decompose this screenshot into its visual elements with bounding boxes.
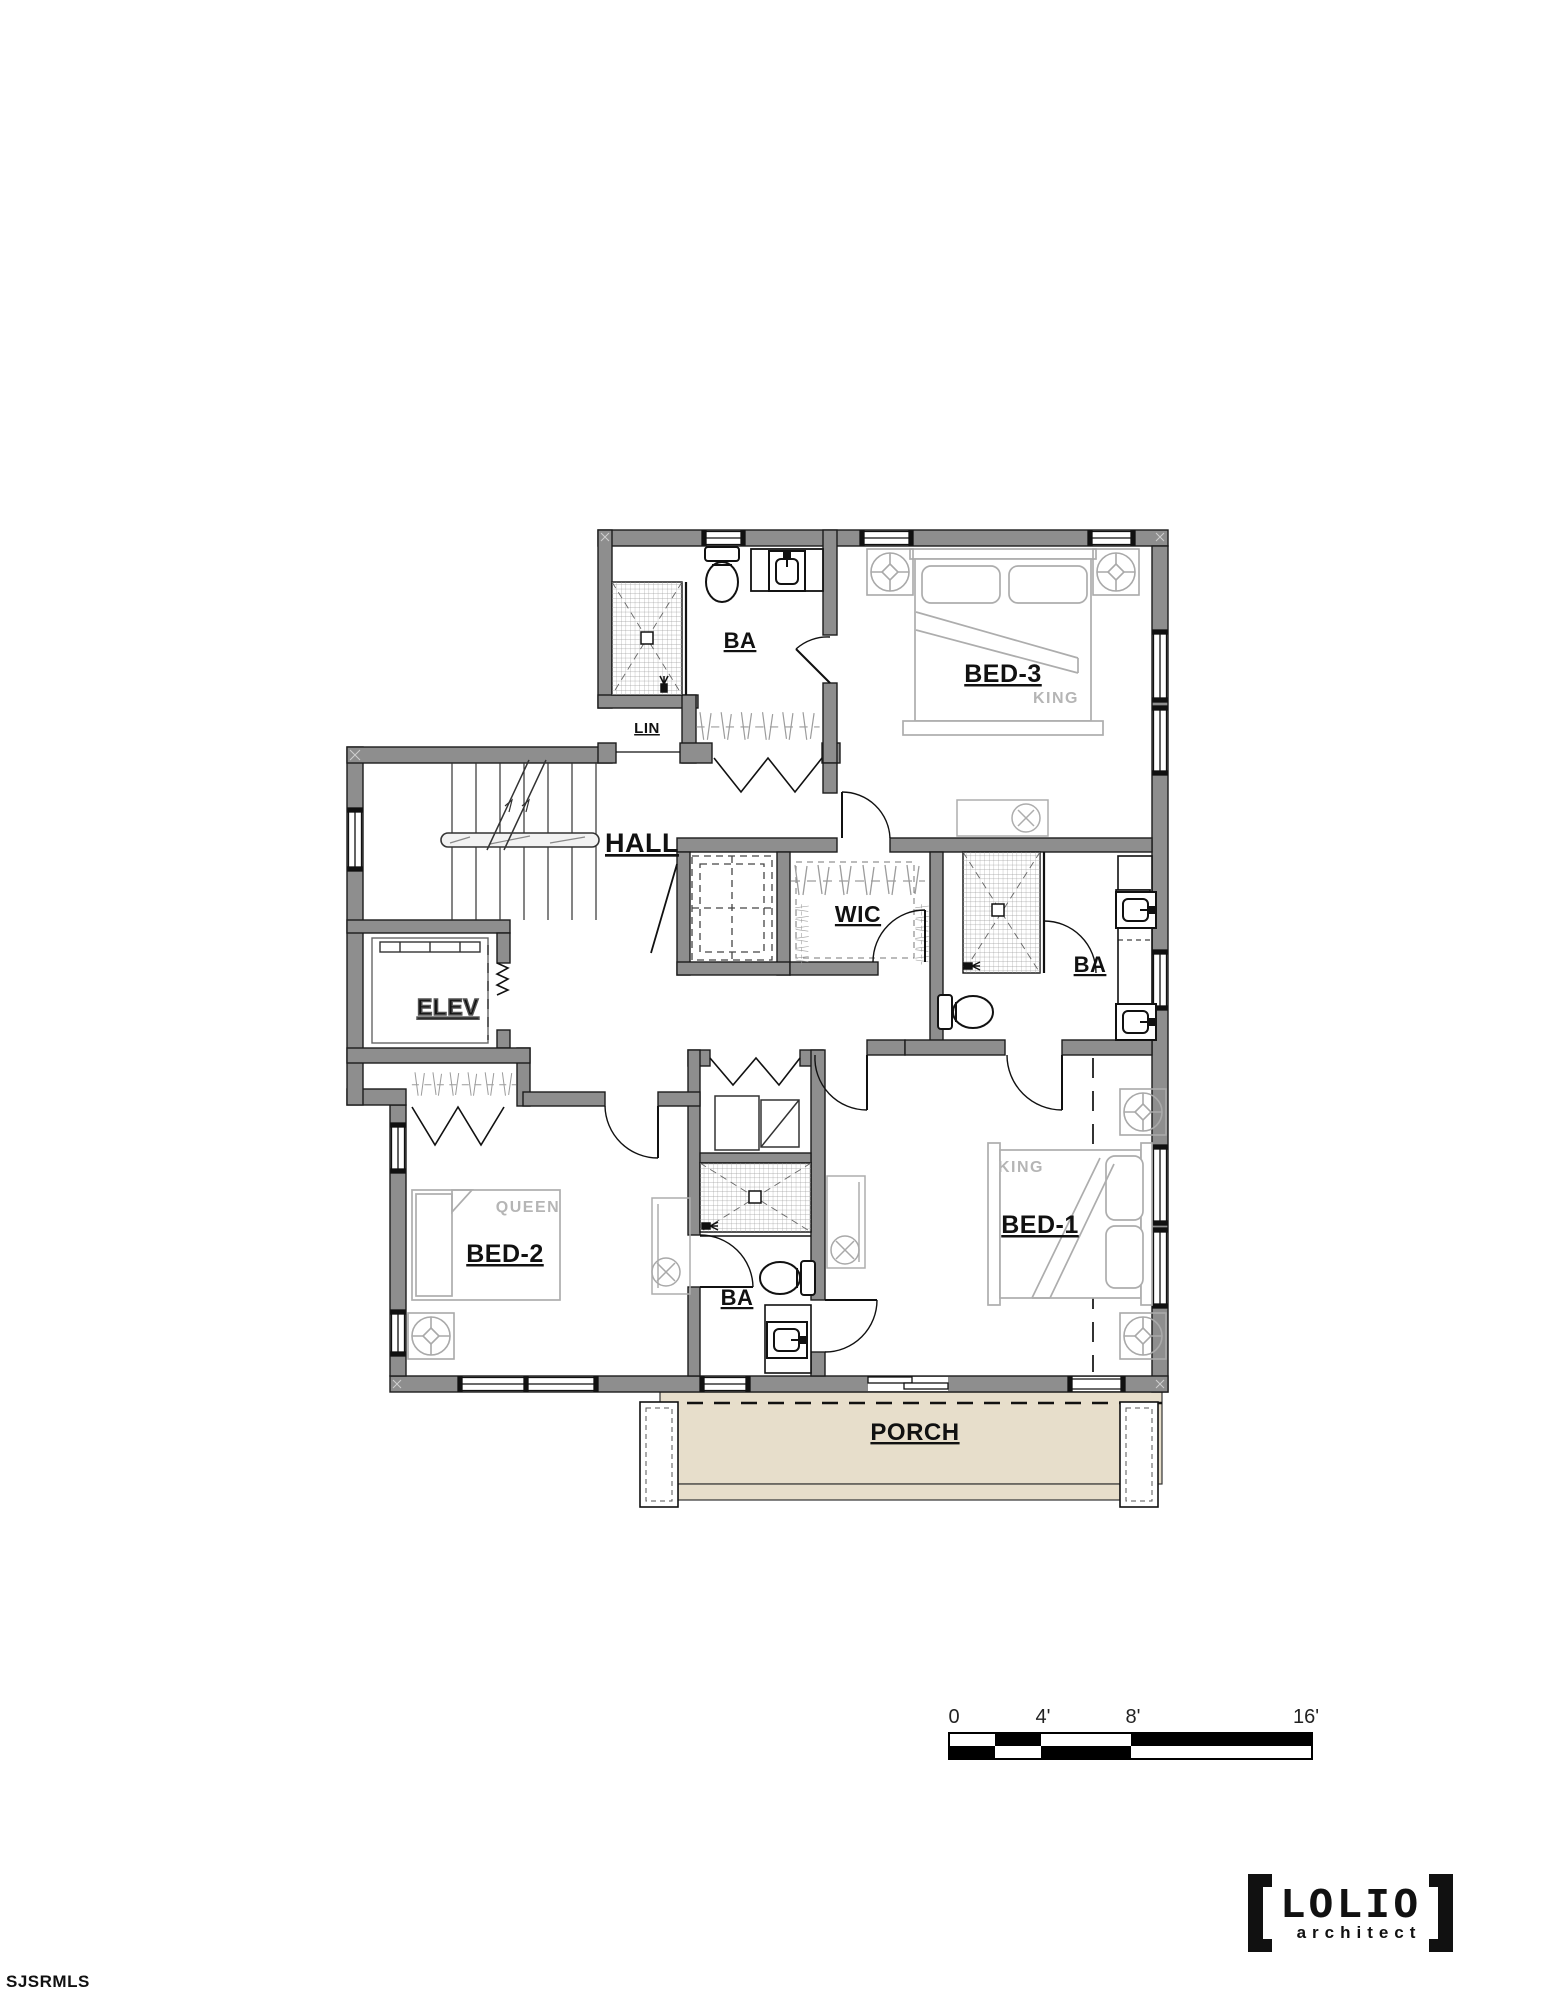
dresser [957, 800, 1048, 836]
room-label-ba-hall: BA [721, 1285, 754, 1310]
door-ba-top [796, 637, 830, 683]
architect-logo: LOLIO architect [1248, 1874, 1453, 1952]
chair [831, 1236, 859, 1264]
shower [612, 582, 686, 695]
bathroom-hall: BA [700, 1058, 877, 1373]
room-label-elev: ELEV [417, 994, 479, 1020]
room-label-wic: WIC [835, 901, 881, 927]
door-bed2-entry [605, 1106, 658, 1158]
vanity-sink [765, 1305, 811, 1373]
room-label-ba-master: BA [1074, 952, 1107, 977]
sink [1116, 892, 1156, 928]
hall-cabinet [651, 856, 772, 960]
door-ba-bed1 [825, 1300, 877, 1352]
double-vanity [1116, 856, 1156, 1040]
scale-tick-0: 0 [948, 1706, 959, 1729]
scale-tick-16: 16' [1293, 1706, 1319, 1729]
logo-bracket-right-icon [1429, 1874, 1453, 1952]
porch: PORCH [640, 1392, 1162, 1507]
shower [700, 1163, 811, 1236]
bed-king [903, 549, 1103, 735]
washer-dryer [715, 1096, 799, 1150]
bathroom-top: BA [612, 547, 830, 695]
scale-tick-4: 4' [1036, 1706, 1051, 1729]
scale-tick-8: 8' [1126, 1706, 1141, 1729]
cabinet-door-leaf [651, 864, 677, 953]
bed1-size-label: KING [998, 1159, 1044, 1176]
room-label-bed1: BED-1 [1001, 1211, 1079, 1239]
bathroom-master: BA [938, 852, 1156, 1110]
ceiling-fan [1093, 549, 1139, 595]
logo-name: LOLIO [1280, 1885, 1421, 1924]
bed2-size-label: QUEEN [496, 1199, 560, 1216]
bedroom-3: BED-3 KING [842, 549, 1139, 838]
toilet [705, 547, 739, 602]
room-label-bed3: BED-3 [964, 660, 1042, 688]
door-ba-master [1007, 1055, 1062, 1110]
room-label-bed2: BED-2 [466, 1240, 544, 1268]
chair [652, 1258, 680, 1286]
mls-watermark: SJSRMLS [6, 1972, 90, 1992]
logo-bracket-left-icon [1248, 1874, 1272, 1952]
toilet [938, 995, 993, 1029]
bed3-size-label: KING [1033, 690, 1079, 707]
elevator: ELEV [372, 938, 508, 1043]
sink [767, 1322, 807, 1358]
ceiling-fan [408, 1313, 454, 1359]
bedroom-2: BED-2 QUEEN [408, 1072, 690, 1359]
desk-chair [827, 1176, 865, 1268]
elevator-accordion-door [497, 963, 508, 995]
walk-in-closet: WIC [791, 862, 929, 965]
stair-handrail [441, 833, 599, 847]
graphic-scale-bar: 0 4' 8' 16' [948, 1706, 1318, 1766]
toilet [760, 1261, 815, 1295]
door-bed3 [842, 792, 890, 838]
room-label-porch: PORCH [870, 1419, 959, 1446]
room-label-hall: HALL [605, 828, 679, 858]
room-label-lin: LIN [634, 720, 660, 737]
sink [1116, 1004, 1156, 1040]
staircase [441, 760, 599, 920]
room-label-ba-top: BA [724, 628, 757, 653]
scale-bar-graphic [948, 1732, 1313, 1760]
vanity-sink [751, 549, 823, 591]
linen-closet: LIN [616, 720, 680, 752]
drawing-sheet: PORCH [0, 0, 1545, 2000]
bifold-doors [714, 758, 822, 792]
bifold-doors [710, 1058, 800, 1085]
bifold-doors [412, 1107, 504, 1145]
ceiling-fan [867, 549, 913, 595]
door-ba-bed2 [700, 1235, 753, 1287]
hall-closet [696, 712, 822, 792]
bedroom-1: BED-1 KING [827, 1058, 1166, 1372]
